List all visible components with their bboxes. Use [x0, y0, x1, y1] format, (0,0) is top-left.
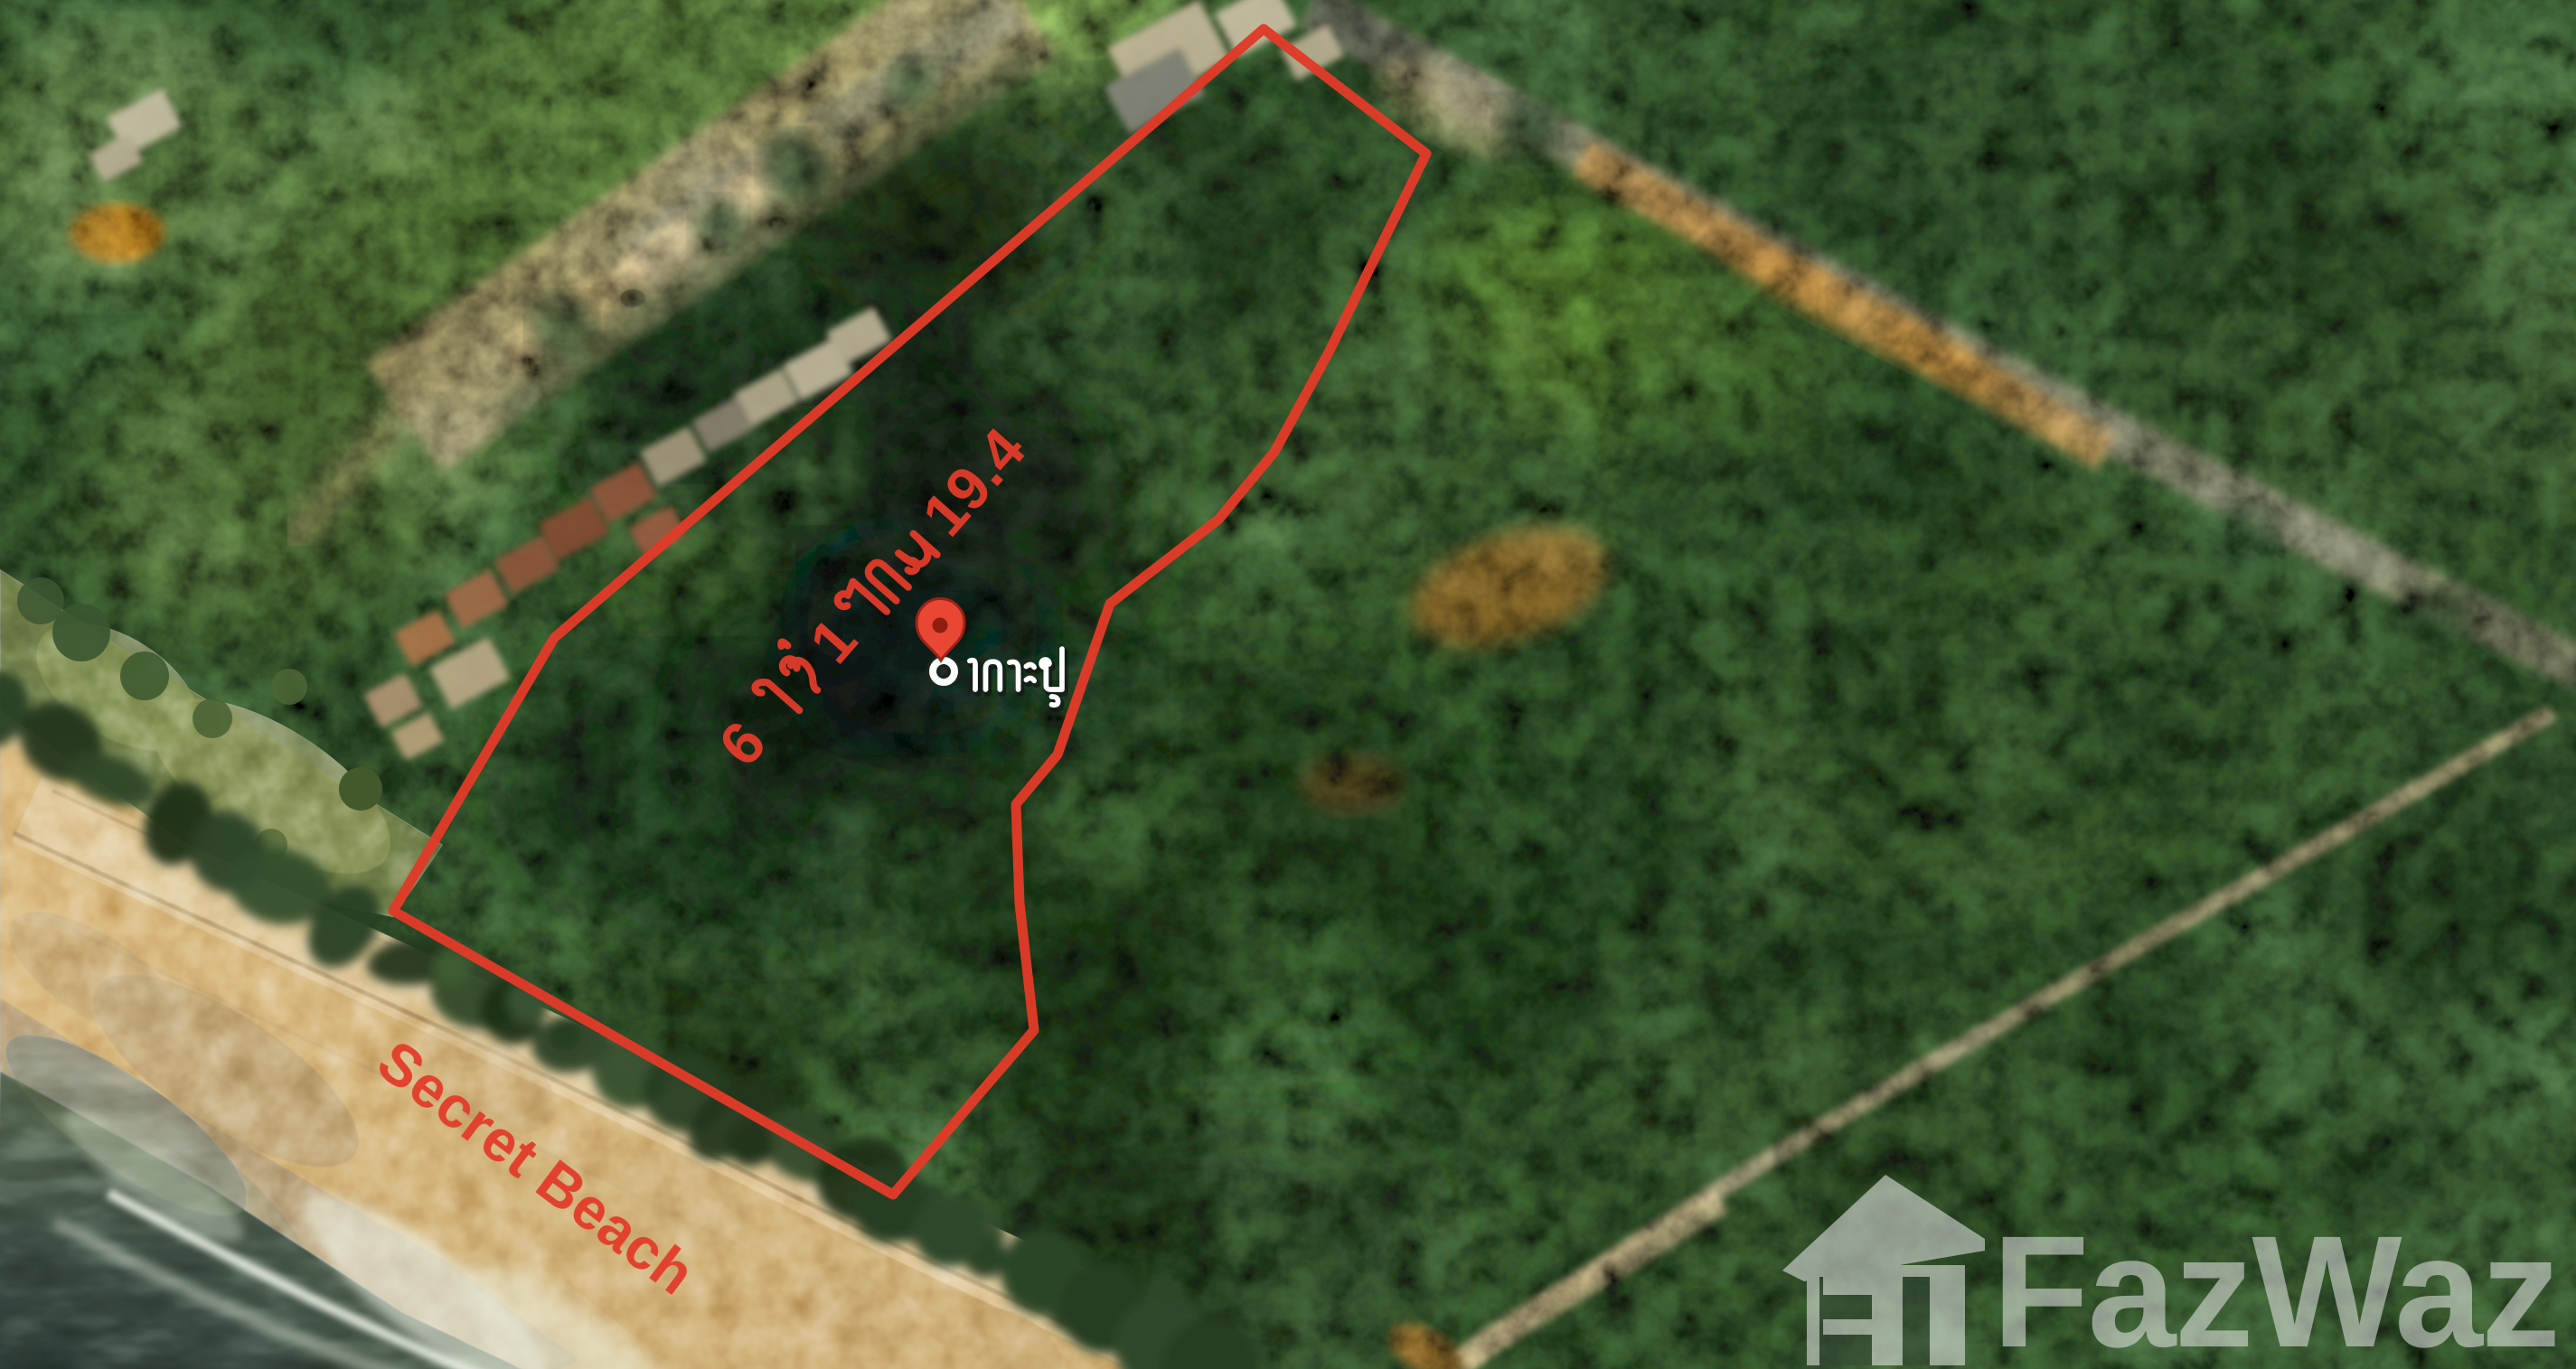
svg-text:FazWaz: FazWaz	[1992, 1204, 2559, 1369]
